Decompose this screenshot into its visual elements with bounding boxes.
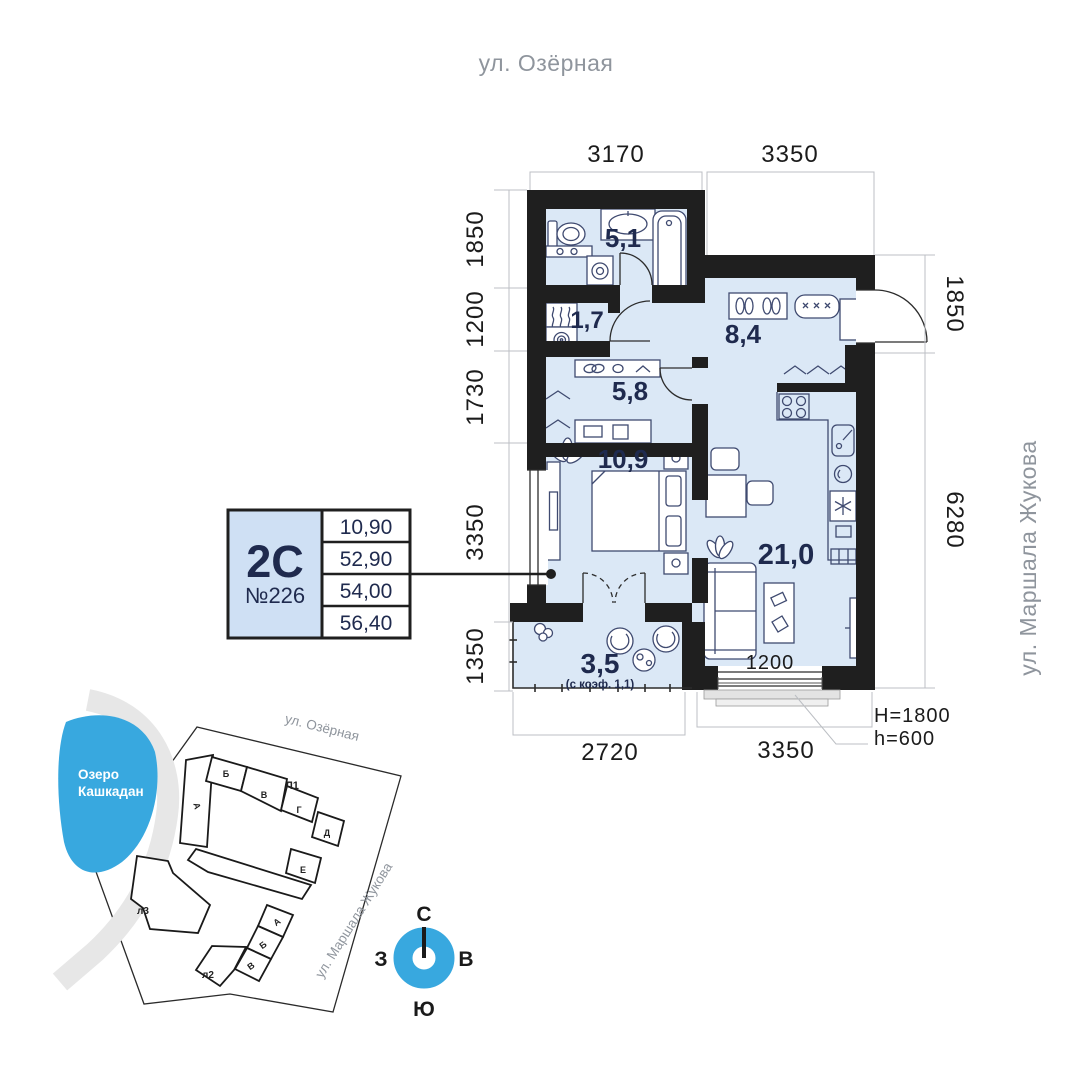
room-label-balcony: 3,5 — [581, 648, 620, 679]
card-row-value: 10,90 — [340, 516, 393, 539]
tv-icon — [850, 598, 857, 658]
room-label-wardrobe: 5,8 — [612, 376, 648, 406]
street-label-top: ул. Озёрная — [479, 50, 614, 76]
site-map: Озеро Кашкадан Б В Г Д Е А Л1 А Б — [58, 700, 401, 1012]
dim-left-1: 1850 — [462, 210, 489, 267]
map-street-top: ул. Озёрная — [284, 711, 361, 744]
dim-left-2: 1200 — [462, 290, 489, 347]
room-label-hallway: 8,4 — [725, 319, 762, 349]
building-label-l1: Л1 — [285, 780, 299, 792]
room-label-balcony-note: (с коэф. 1,1) — [566, 679, 635, 691]
dim-left-3: 1730 — [462, 368, 489, 425]
section-label: Д — [324, 828, 331, 838]
building-label-l3: л3 — [137, 906, 149, 917]
compass-west: З — [374, 948, 387, 971]
room-label-bathroom: 5,1 — [605, 223, 641, 253]
sofa-icon — [704, 563, 756, 659]
street-label-right: ул. Маршала Жукова — [1015, 440, 1041, 675]
dim-sill-height: h=600 — [874, 728, 935, 750]
lake-label-line1: Озеро — [78, 767, 119, 782]
dim-top-left: 3170 — [587, 141, 644, 168]
room-label-storage: 1,7 — [570, 307, 603, 334]
compass-south: Ю — [413, 998, 435, 1021]
leader-dot — [546, 569, 556, 579]
card-type: 2С — [246, 536, 304, 587]
section-label: Б — [223, 769, 230, 779]
dim-right-2: 6280 — [941, 491, 968, 548]
card-row-value: 54,00 — [340, 580, 393, 603]
compass: С Ю З В — [374, 903, 473, 1021]
section-a — [180, 755, 213, 847]
card-number: №226 — [245, 583, 305, 608]
dim-window-height: H=1800 — [874, 705, 951, 727]
compass-north: С — [416, 903, 431, 926]
dim-bottom-left: 2720 — [581, 739, 638, 766]
dim-bottom-right: 3350 — [757, 737, 814, 764]
dim-top-right: 3350 — [761, 141, 818, 168]
compass-east: В — [458, 948, 473, 971]
building-label-l2: л2 — [202, 970, 214, 981]
card-row-value: 52,90 — [340, 548, 393, 571]
chair-icon — [747, 481, 773, 505]
lake-label-line2: Кашкадан — [78, 784, 144, 799]
section-label: В — [261, 790, 268, 800]
card-row-value: 56,40 — [340, 612, 393, 635]
bedroom-window — [523, 470, 548, 585]
room-label-bedroom: 10,9 — [598, 444, 649, 474]
dim-window-width: 1200 — [746, 652, 795, 674]
nightstand-icon — [664, 553, 688, 574]
table-icon — [706, 475, 746, 517]
toilet-icon — [548, 221, 557, 248]
dim-left-4: 3350 — [462, 503, 489, 560]
dim-left-5: 1350 — [462, 627, 489, 684]
shoe-cabinet-icon — [729, 293, 787, 319]
floorplan-page: ул. Озёрная ул. Маршала Жукова — [0, 0, 1080, 1080]
coffee-table-icon — [764, 583, 794, 643]
entrance-door — [856, 290, 927, 343]
dresser-icon — [547, 462, 560, 560]
section-label: Г — [296, 805, 301, 815]
bed-icon — [592, 471, 686, 551]
dim-right-1: 1850 — [941, 275, 968, 332]
side-table-icon — [633, 649, 655, 671]
floorplan-canvas: ул. Озёрная ул. Маршала Жукова — [0, 0, 1080, 1080]
apartment-card: 2С №226 10,90 52,90 54,00 56,40 — [228, 510, 556, 638]
room-label-living: 21,0 — [758, 539, 814, 571]
fridge-icon — [830, 491, 856, 521]
chair-icon — [711, 448, 739, 470]
section-label: Е — [300, 865, 306, 875]
